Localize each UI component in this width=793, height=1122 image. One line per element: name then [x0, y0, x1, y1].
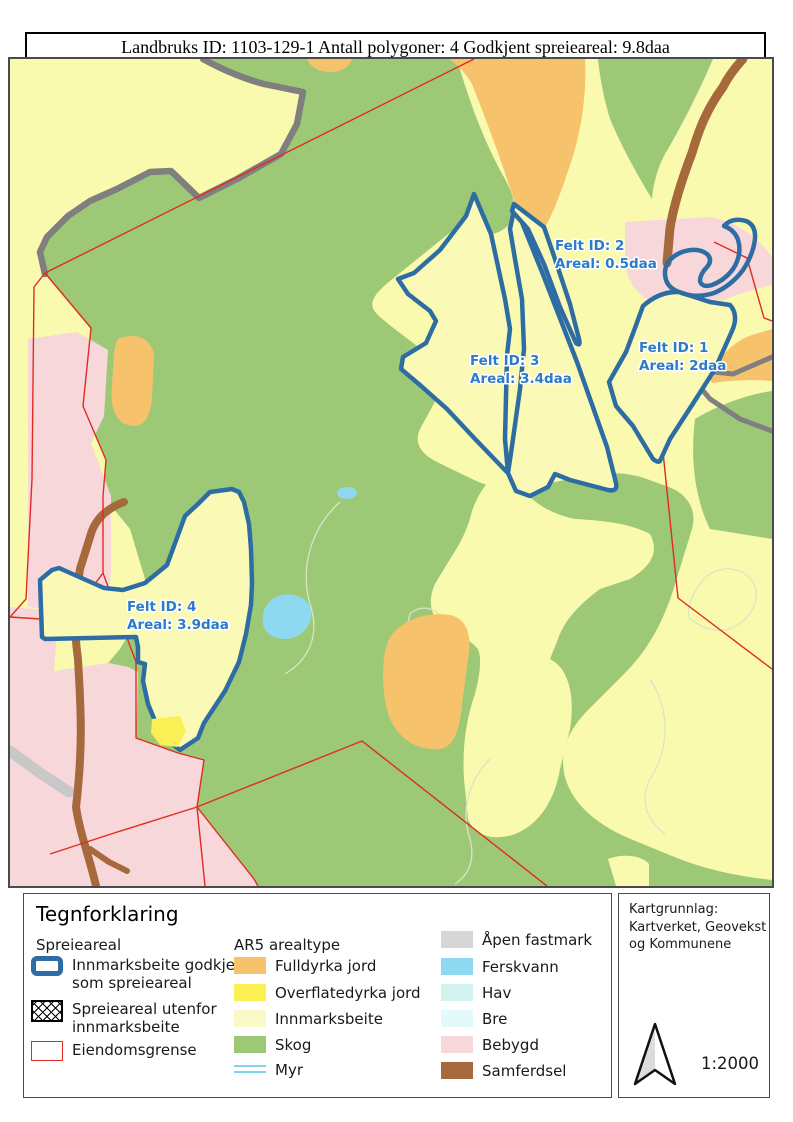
spreieareal-header: Spreieareal: [36, 936, 121, 954]
legend-item-label: Ferskvann: [482, 958, 559, 976]
color-swatch: [441, 1062, 473, 1079]
color-swatch: [234, 1010, 266, 1027]
red-outline-swatch: [31, 1041, 63, 1061]
map-svg[interactable]: Felt ID: 1 Areal: 2daa Felt ID: 2 Areal:…: [10, 59, 772, 886]
kartgrunnlag-line: Kartgrunnlag:: [629, 901, 766, 919]
legend-title: Tegnforklaring: [36, 902, 179, 926]
legend-item-label: Eiendomsgrense: [72, 1041, 197, 1059]
legend-item-label: Innmarksbeite: [275, 1010, 383, 1028]
map-info-box: Kartgrunnlag: Kartverket, Geovekst og Ko…: [618, 893, 770, 1098]
legend-item-label: Fulldyrka jord: [275, 957, 376, 975]
color-swatch: [234, 984, 266, 1001]
blue-outline-swatch: [31, 956, 63, 976]
felt-1-id-label: Felt ID: 1: [639, 340, 708, 356]
color-swatch: [441, 1010, 473, 1027]
legend-item-label: Hav: [482, 984, 511, 1002]
legend-item-ferskvann: Ferskvann: [441, 958, 559, 976]
legend-item-overflatedyrka: Overflatedyrka jord: [234, 984, 421, 1002]
kartgrunnlag-line: og Kommunene: [629, 936, 766, 954]
legend-item-label: innmarksbeite: [72, 1018, 217, 1036]
legend-item-eiendomsgrense: Eiendomsgrense: [31, 1041, 197, 1061]
page: Landbruks ID: 1103-129-1 Antall polygone…: [0, 0, 793, 1122]
map-scale: 1:2000: [701, 1054, 759, 1073]
kartgrunnlag-line: Kartverket, Geovekst: [629, 919, 766, 937]
felt-3-id-label: Felt ID: 3: [470, 353, 539, 369]
color-swatch: [234, 1036, 266, 1053]
north-arrow-icon: [631, 1022, 679, 1092]
legend-item-bebygd: Bebygd: [441, 1036, 539, 1054]
felt-3-areal-label: Areal: 3.4daa: [470, 371, 572, 387]
color-swatch: [441, 984, 473, 1001]
map-title-text: Landbruks ID: 1103-129-1 Antall polygone…: [121, 37, 670, 58]
legend-item-label: Skog: [275, 1036, 311, 1054]
color-swatch: [441, 931, 473, 948]
legend-item-label: Overflatedyrka jord: [275, 984, 421, 1002]
crosshatch-swatch: [31, 1000, 63, 1022]
legend-item-label: Myr: [275, 1061, 303, 1079]
legend-item-label: Samferdsel: [482, 1062, 566, 1080]
color-swatch: [441, 958, 473, 975]
felt-1-areal-label: Areal: 2daa: [639, 358, 726, 374]
color-swatch: [234, 957, 266, 974]
ar5-header: AR5 arealtype: [234, 936, 340, 954]
felt-2-id-label: Felt ID: 2: [555, 238, 624, 254]
color-swatch: [441, 1036, 473, 1053]
felt-2-areal-label: Areal: 0.5daa: [555, 256, 657, 272]
legend-item-samferdsel: Samferdsel: [441, 1062, 566, 1080]
legend-item-label: Bre: [482, 1010, 507, 1028]
legend-item-apen-fastmark: Åpen fastmark: [441, 931, 592, 949]
felt-4-id-label: Felt ID: 4: [127, 599, 196, 615]
legend-item-skog: Skog: [234, 1036, 311, 1054]
legend-item-fulldyrka: Fulldyrka jord: [234, 957, 376, 975]
legend-item-label: Innmarksbeite godkjent: [72, 956, 250, 974]
legend-item-utenfor: Spreieareal utenfor innmarksbeite: [31, 1000, 217, 1036]
legend-item-label: Åpen fastmark: [482, 931, 592, 949]
map-canvas[interactable]: Felt ID: 1 Areal: 2daa Felt ID: 2 Areal:…: [8, 57, 774, 888]
legend-panel: Tegnforklaring Spreieareal Innmarksbeite…: [23, 893, 612, 1098]
myr-lines-swatch: [234, 1061, 266, 1078]
legend-item-hav: Hav: [441, 984, 511, 1002]
legend-item-label: Bebygd: [482, 1036, 539, 1054]
felt-4-areal-label: Areal: 3.9daa: [127, 617, 229, 633]
legend-item-myr: Myr: [234, 1061, 303, 1079]
legend-item-godkjent: Innmarksbeite godkjent som spreieareal: [31, 956, 250, 992]
legend-item-label: som spreieareal: [72, 974, 250, 992]
legend-item-label: Spreieareal utenfor: [72, 1000, 217, 1018]
legend-item-innmarksbeite: Innmarksbeite: [234, 1010, 383, 1028]
legend-item-bre: Bre: [441, 1010, 507, 1028]
